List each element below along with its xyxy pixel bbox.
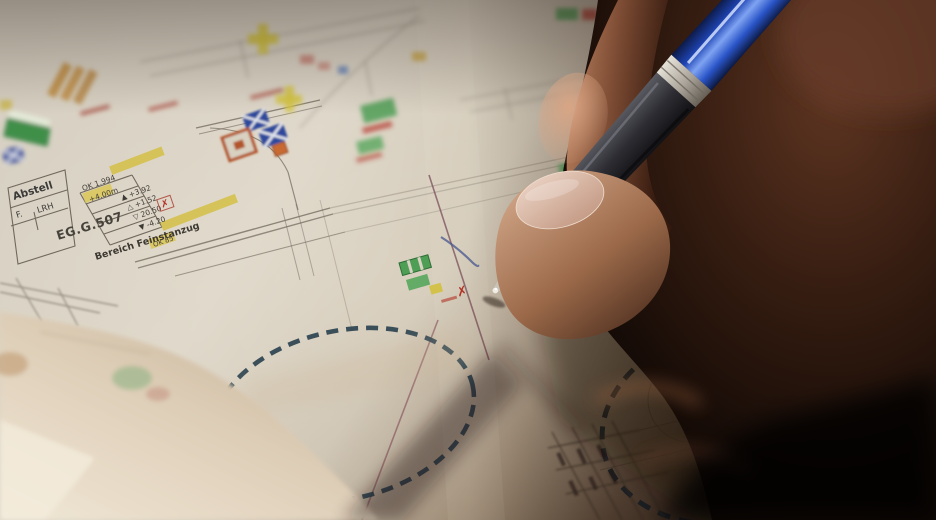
- photo-scene: Abstell F. LRH EG.G.507 Bereich Feinstan…: [0, 0, 936, 520]
- photo-canvas: Abstell F. LRH EG.G.507 Bereich Feinstan…: [0, 0, 936, 520]
